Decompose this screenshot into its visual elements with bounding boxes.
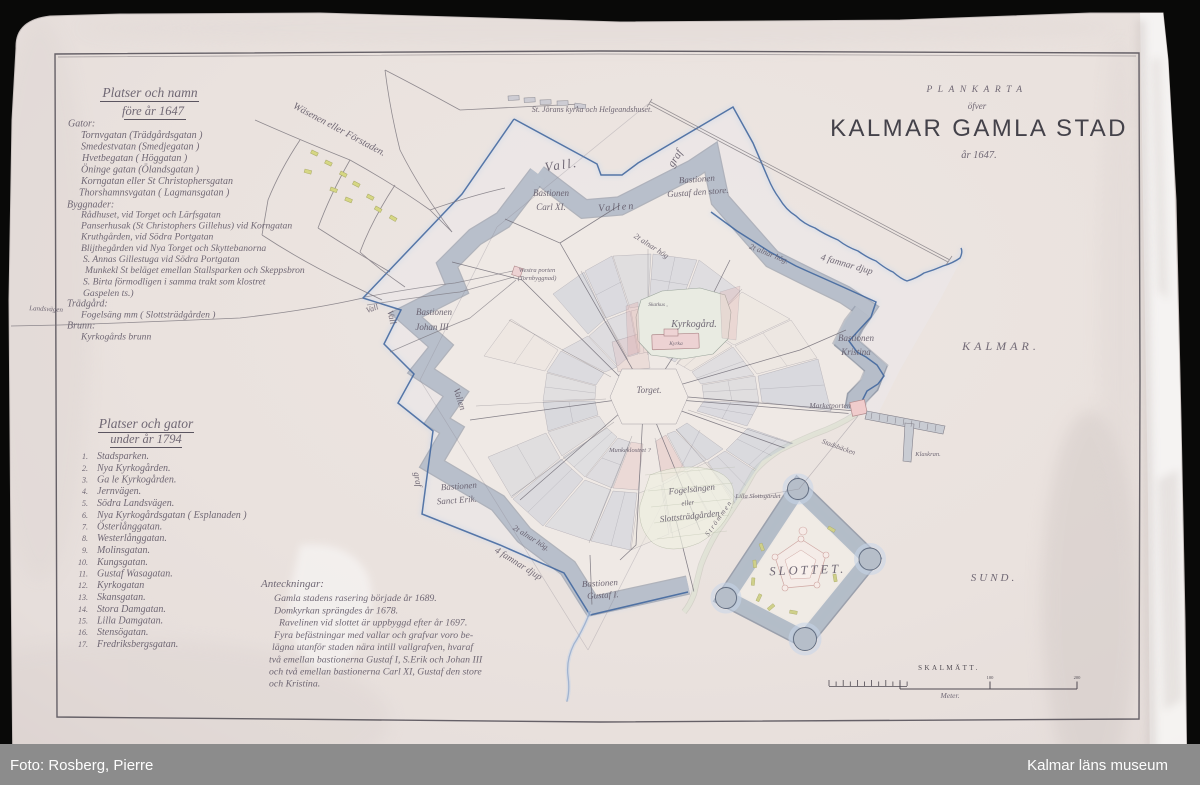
svg-text:12.: 12. xyxy=(78,581,88,590)
svg-text:Bastionen: Bastionen xyxy=(582,577,619,589)
svg-text:1.: 1. xyxy=(82,452,88,461)
svg-text:Kristina: Kristina xyxy=(840,347,871,357)
svg-text:öfver: öfver xyxy=(968,101,987,111)
svg-text:Kyrkogårds brunn: Kyrkogårds brunn xyxy=(80,332,151,343)
svg-text:Torget.: Torget. xyxy=(636,385,661,395)
svg-text:4.: 4. xyxy=(82,487,88,496)
svg-text:och Kristina.: och Kristina. xyxy=(269,679,320,690)
svg-text:Platser och gator: Platser och gator xyxy=(98,416,194,431)
svg-text:Foto: Rosberg, Pierre: Foto: Rosberg, Pierre xyxy=(10,757,153,774)
svg-text:Marketporten: Marketporten xyxy=(808,401,850,410)
svg-text:före år 1647: före år 1647 xyxy=(122,104,185,118)
svg-text:Brunn:: Brunn: xyxy=(67,321,95,332)
svg-text:Gustaf Wasagatan.: Gustaf Wasagatan. xyxy=(97,569,173,580)
svg-text:16.: 16. xyxy=(78,628,88,637)
svg-text:Rådhuset, vid Torget och Lärfs: Rådhuset, vid Torget och Lärfsgatan xyxy=(80,210,221,221)
svg-text:Westra porten: Westra porten xyxy=(519,267,555,274)
svg-text:Bastionen: Bastionen xyxy=(416,307,452,317)
svg-text:Ravelinen vid slottet är uppby: Ravelinen vid slottet är uppbyggd efter … xyxy=(278,618,467,629)
svg-text:Fyra befästningar med vallar o: Fyra befästningar med vallar och grafvar… xyxy=(273,630,473,641)
svg-text:Ga le Kyrkogården.: Ga le Kyrkogården. xyxy=(97,475,176,486)
svg-text:Domkyrkan sprängdes år 1678.: Domkyrkan sprängdes år 1678. xyxy=(273,606,398,617)
svg-text:Österlånggatan.: Österlånggatan. xyxy=(97,521,162,533)
svg-text:Stensögatan.: Stensögatan. xyxy=(97,627,148,638)
svg-text:Munkekl St beläget emel: Munkekl St beläget emellan Stallsparken … xyxy=(84,265,305,276)
svg-text:Kalmar läns museum: Kalmar läns museum xyxy=(1027,757,1168,774)
svg-text:Panserhusak (St Christophers G: Panserhusak (St Christophers Gillehus) v… xyxy=(80,221,292,232)
svg-text:Stora Damgatan.: Stora Damgatan. xyxy=(97,604,166,615)
svg-text:Blijthegården vid Nya Torget o: Blijthegården vid Nya Torget och Skytteb… xyxy=(81,243,266,254)
svg-text:Fredriksbergsgatan.: Fredriksbergsgatan. xyxy=(96,639,178,650)
svg-text:Trädgård:: Trädgård: xyxy=(67,299,108,310)
svg-text:Nya Kyrkogårdsgatan ( Esplanad: Nya Kyrkogårdsgatan ( Esplanaden ) xyxy=(96,510,247,521)
svg-text:10.: 10. xyxy=(78,558,88,567)
svg-text:Korngatan eller St Christoph: Korngatan eller St Christophersgatan xyxy=(80,176,233,187)
svg-text:2.: 2. xyxy=(82,464,88,473)
svg-text:Smedestvatan (Smedjegatan ): Smedestvatan (Smedjegatan ) xyxy=(81,142,200,153)
svg-text:S. Annas Gillestuga vid Södra: S. Annas Gillestuga vid Södra Portgatan xyxy=(83,254,240,265)
svg-text:Jernvägen.: Jernvägen. xyxy=(97,486,141,497)
svg-text:Tornvgatan (Trädgårdsgatan ): Tornvgatan (Trädgårdsgatan ) xyxy=(81,130,203,141)
svg-text:Skansgatan.: Skansgatan. xyxy=(97,592,146,603)
svg-text:under år 1794: under år 1794 xyxy=(110,432,182,446)
svg-text:Kyrkogård.: Kyrkogård. xyxy=(670,319,716,330)
svg-text:två emellan bastionerna Gustaf: två emellan bastionerna Gustaf I, S.Erik… xyxy=(269,655,483,666)
svg-text:Lilla Damgatan.: Lilla Damgatan. xyxy=(96,616,163,627)
svg-text:14.: 14. xyxy=(78,605,88,614)
svg-text:13.: 13. xyxy=(78,593,88,602)
svg-text:KALMAR GAMLA STAD: KALMAR GAMLA STAD xyxy=(830,115,1128,142)
svg-text:15.: 15. xyxy=(78,617,88,626)
svg-text:SKALMÄTT.: SKALMÄTT. xyxy=(918,664,980,672)
svg-text:Kyrka: Kyrka xyxy=(668,341,683,347)
svg-text:St. Jörans kyrka och Helgeands: St. Jörans kyrka och Helgeandshuset. xyxy=(532,105,652,114)
svg-text:3.: 3. xyxy=(81,476,88,485)
svg-text:Södra Landsvägen.: Södra Landsvägen. xyxy=(97,498,174,509)
svg-text:eller: eller xyxy=(681,498,695,507)
svg-text:Gaspelen ts.): Gaspelen ts.) xyxy=(83,288,134,299)
svg-text:(Tornbyggnad): (Tornbyggnad) xyxy=(518,275,557,282)
svg-text:200: 200 xyxy=(1074,675,1082,680)
svg-text:6.: 6. xyxy=(82,511,88,520)
svg-text:Gamla stadens rasering började: Gamla stadens rasering började år 1689. xyxy=(274,593,437,604)
svg-text:Klaskran.: Klaskran. xyxy=(914,451,941,458)
svg-text:S. Birta förmodligen: S. Birta förmodligen i samma trakt som k… xyxy=(83,277,266,288)
svg-text:Thorshamnsvgatan ( Lagmansgata: Thorshamnsvgatan ( Lagmansgatan ) xyxy=(79,188,230,199)
svg-text:SLOTTET.: SLOTTET. xyxy=(769,562,846,579)
svg-text:9.: 9. xyxy=(82,546,88,555)
svg-text:Platser och namn: Platser och namn xyxy=(101,85,197,100)
svg-text:8.: 8. xyxy=(82,534,88,543)
svg-text:SUND.: SUND. xyxy=(971,572,1017,584)
svg-text:år 1647.: år 1647. xyxy=(961,150,997,161)
svg-text:Bastionen: Bastionen xyxy=(533,188,569,198)
svg-text:Hvetbegatan ( Höggatan ): Hvetbegatan ( Höggatan ) xyxy=(81,153,188,164)
svg-text:Westerlånggatan.: Westerlånggatan. xyxy=(97,533,167,544)
svg-text:Stadsparken.: Stadsparken. xyxy=(97,451,149,462)
svg-text:Gator:: Gator: xyxy=(68,119,95,130)
svg-text:Nya Kyrkogården.: Nya Kyrkogården. xyxy=(96,463,171,474)
svg-text:Kungsgatan.: Kungsgatan. xyxy=(96,557,148,568)
svg-text:Öninge gatan (Ölandsgatan ): Öninge gatan (Ölandsgatan ) xyxy=(81,164,200,176)
svg-text:Bastionen: Bastionen xyxy=(838,333,874,343)
svg-text:5.: 5. xyxy=(82,499,88,508)
svg-text:Anteckningar:: Anteckningar: xyxy=(260,578,324,590)
svg-text:Molinsgatan.: Molinsgatan. xyxy=(96,545,150,556)
svg-text:Kruthgården, vid Södra Portgat: Kruthgården, vid Södra Portgatan xyxy=(80,232,214,243)
svg-text:17.: 17. xyxy=(78,640,88,649)
svg-text:Skatkus ,: Skatkus , xyxy=(648,302,668,308)
svg-text:Lilla Slottsgärdet: Lilla Slottsgärdet xyxy=(734,493,780,500)
svg-text:lägna utanför staden nära inti: lägna utanför staden nära intill vallgra… xyxy=(272,642,474,653)
svg-text:Munkeklostret ?: Munkeklostret ? xyxy=(608,447,652,454)
svg-text:Fogelsäng mm ( Slotts: Fogelsäng mm ( Slottsträdgården ) xyxy=(80,310,215,321)
svg-text:Gustaf I.: Gustaf I. xyxy=(587,589,619,601)
svg-text:Carl XI.: Carl XI. xyxy=(536,202,566,212)
svg-text:7.: 7. xyxy=(82,523,88,532)
svg-text:PLANKARTA: PLANKARTA xyxy=(925,85,1027,95)
svg-text:Johan III: Johan III xyxy=(415,322,449,332)
svg-text:Meter.: Meter. xyxy=(940,691,960,700)
svg-text:KALMAR.: KALMAR. xyxy=(961,339,1040,353)
svg-text:100: 100 xyxy=(987,675,995,680)
svg-text:11.: 11. xyxy=(79,570,88,579)
svg-text:Kyrkogatan: Kyrkogatan xyxy=(96,580,144,591)
svg-text:och två emellan bastionerna Ca: och två emellan bastionerna Carl XI, Gus… xyxy=(269,667,482,678)
